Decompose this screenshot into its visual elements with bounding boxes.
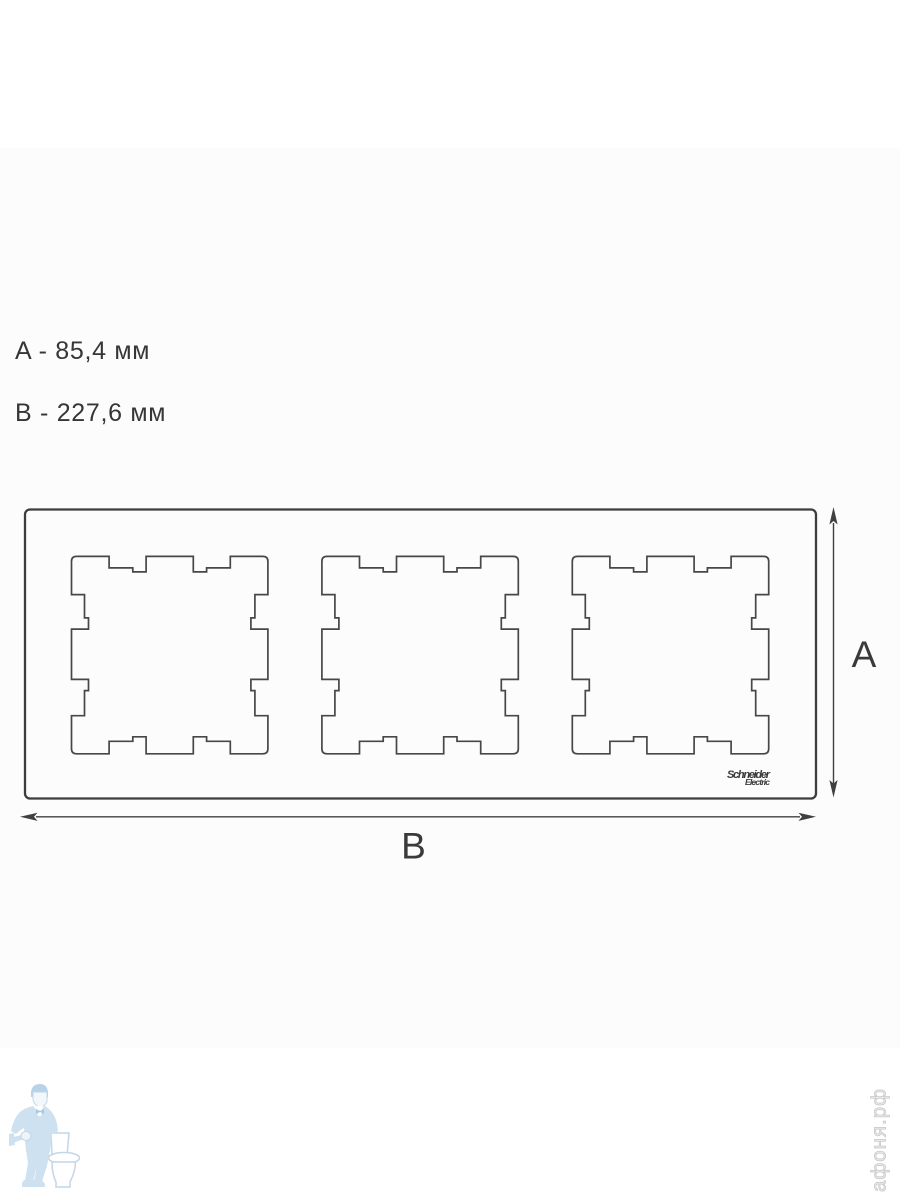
svg-text:Electric: Electric: [745, 777, 770, 787]
svg-text:B: B: [401, 826, 426, 867]
svg-text:афоня.рф: афоня.рф: [868, 1088, 891, 1192]
svg-text:A: A: [852, 634, 877, 675]
